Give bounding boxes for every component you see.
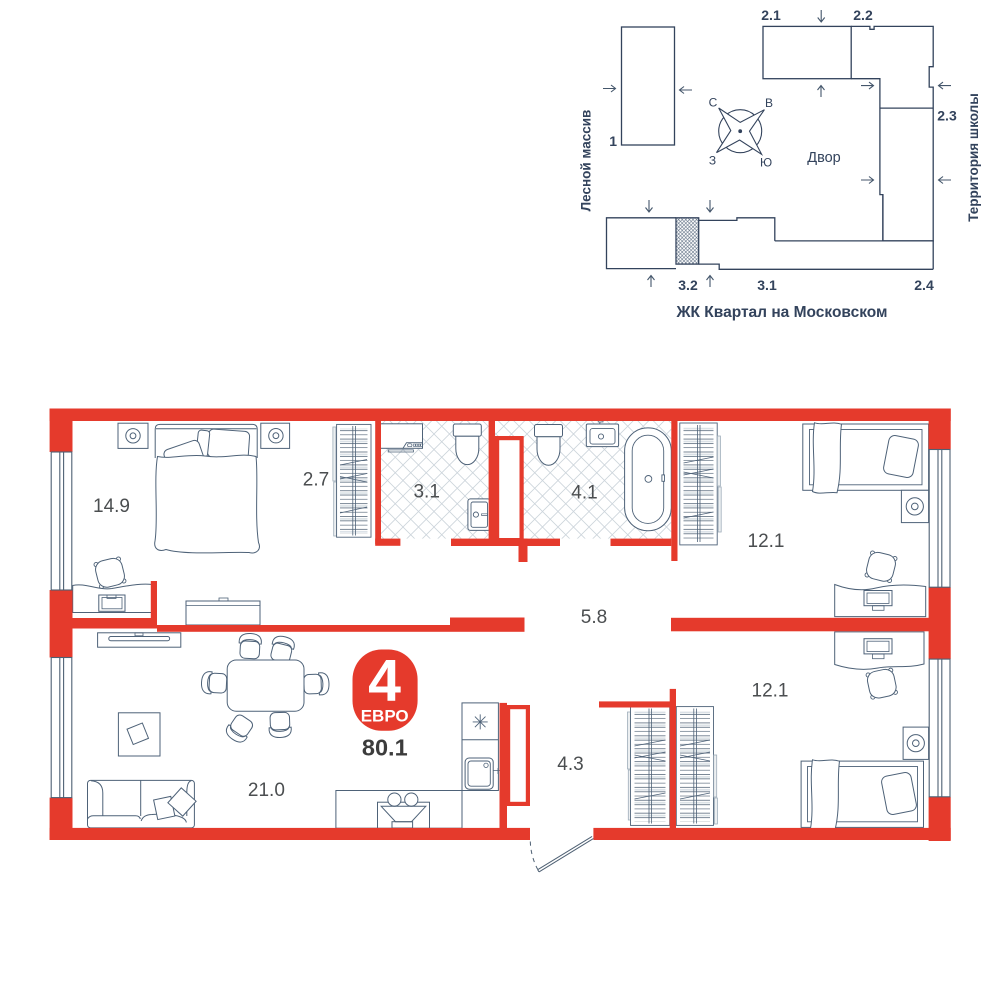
- svg-text:2.7: 2.7: [303, 470, 329, 491]
- svg-text:1: 1: [609, 133, 617, 149]
- svg-text:С: С: [709, 96, 718, 110]
- svg-text:4: 4: [368, 648, 401, 714]
- svg-text:12.1: 12.1: [748, 531, 785, 552]
- svg-text:Территория школы: Территория школы: [966, 93, 981, 222]
- svg-text:ЕВРО: ЕВРО: [361, 707, 409, 726]
- svg-text:З: З: [709, 154, 716, 168]
- svg-text:12.1: 12.1: [752, 681, 789, 702]
- svg-text:3.2: 3.2: [678, 277, 698, 293]
- svg-text:80.1: 80.1: [362, 735, 408, 761]
- svg-text:2.3: 2.3: [937, 108, 957, 124]
- svg-text:Лесной массив: Лесной массив: [579, 110, 594, 212]
- svg-text:5.8: 5.8: [581, 607, 607, 628]
- svg-text:В: В: [765, 96, 773, 110]
- svg-text:21.0: 21.0: [248, 780, 285, 801]
- svg-text:3.1: 3.1: [413, 482, 439, 503]
- svg-text:4.3: 4.3: [557, 754, 583, 775]
- svg-text:3.1: 3.1: [757, 277, 777, 293]
- svg-text:2.2: 2.2: [853, 7, 873, 23]
- svg-text:14.9: 14.9: [93, 496, 130, 517]
- svg-text:2.4: 2.4: [914, 277, 934, 293]
- svg-text:4.1: 4.1: [571, 482, 597, 503]
- svg-text:Двор: Двор: [807, 150, 841, 166]
- svg-text:Ю: Ю: [760, 156, 772, 170]
- svg-text:ЖК Квартал на Московском: ЖК Квартал на Московском: [676, 304, 888, 321]
- svg-text:2.1: 2.1: [761, 7, 781, 23]
